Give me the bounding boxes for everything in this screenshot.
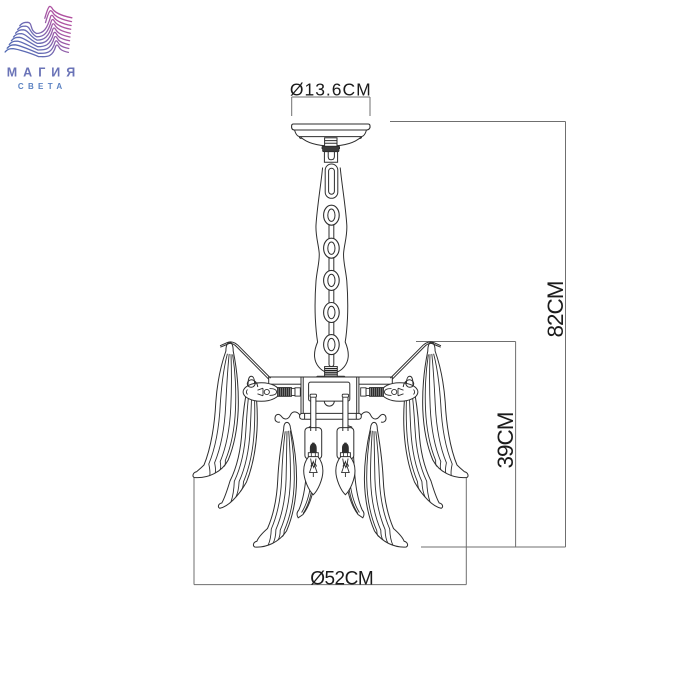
- svg-text:39CM: 39CM: [493, 412, 518, 468]
- svg-text:82CM: 82CM: [543, 281, 568, 337]
- svg-text:Ø52CM: Ø52CM: [310, 568, 373, 589]
- svg-text:СВЕТА: СВЕТА: [18, 82, 67, 91]
- svg-text:МАГИЯ: МАГИЯ: [7, 66, 82, 80]
